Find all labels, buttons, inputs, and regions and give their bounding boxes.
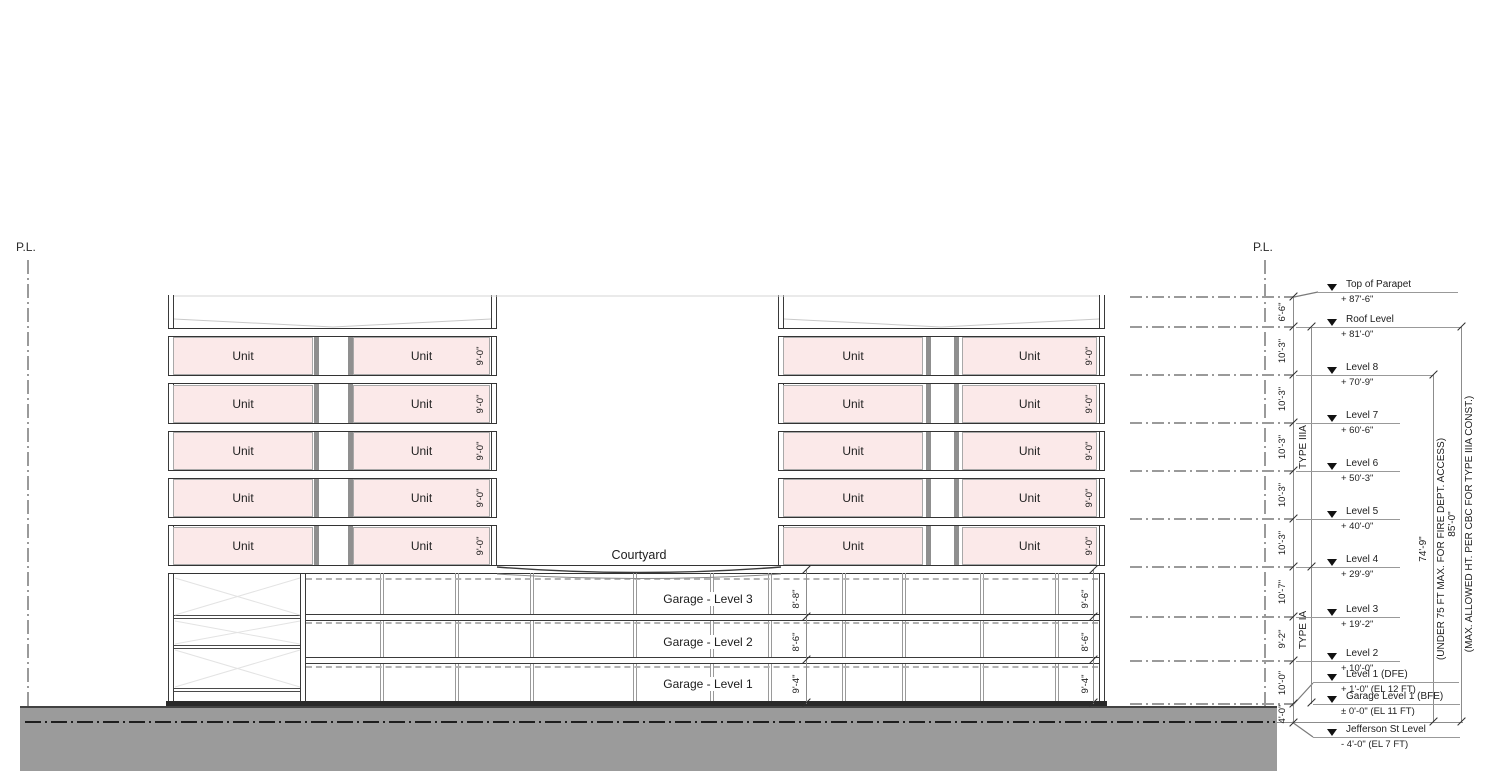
unit-label: Unit: [842, 491, 863, 505]
jefferson-street-level-line: [25, 721, 1275, 723]
unit-label: Unit: [842, 539, 863, 553]
garage-height-dimension-right: 9'-4": [1080, 673, 1092, 696]
level-name: Level 2: [1346, 649, 1378, 659]
floor-to-floor-dimension: 10'-7": [1278, 580, 1288, 604]
garage-column: [842, 573, 846, 701]
floor-slab: [778, 423, 1105, 432]
garage-floor-slab: [306, 657, 1099, 664]
unit-label: Unit: [232, 444, 253, 458]
floor-to-floor-dimension: 10'-3": [1278, 531, 1288, 555]
max-height-note: (MAX. ALLOWED HT. PER CBC FOR TYPE IIIA …: [1465, 396, 1475, 653]
level-marker-triangle-icon: [1327, 367, 1337, 374]
property-line-left: [27, 260, 29, 706]
floor-to-floor-dimension: 10'-3": [1278, 483, 1288, 507]
floor-slab: [778, 375, 1105, 384]
garage-column: [980, 573, 984, 701]
unit-room: Unit: [783, 432, 923, 470]
level-name: Level 6: [1346, 459, 1378, 469]
garage-dimension-line-right: [1093, 570, 1094, 704]
unit-label: Unit: [411, 444, 432, 458]
floor-to-floor-dimension: 6'-6": [1278, 303, 1288, 322]
type-dimension-line: [1311, 327, 1312, 704]
garage-column: [530, 573, 534, 701]
level-name: Level 7: [1346, 411, 1378, 421]
core-floor: [174, 615, 300, 619]
unit-label: Unit: [232, 397, 253, 411]
unit-room: Unit: [962, 527, 1097, 565]
garage-height-dimension-right: 8'-6": [1080, 631, 1092, 654]
level-marker-line: [1318, 292, 1458, 293]
unit-height-dimension: 9'-0": [1085, 537, 1095, 556]
roof-slope-lines: [174, 319, 1099, 327]
unit-room: Unit: [783, 527, 923, 565]
unit-room: Unit: [783, 479, 923, 517]
level-elevation: + 70'-9": [1341, 378, 1373, 388]
unit-label: Unit: [232, 539, 253, 553]
garage-level-label: Garage - Level 3: [652, 592, 764, 606]
garage-level-label: Garage - Level 1: [652, 677, 764, 691]
level-name: Jefferson St Level: [1346, 725, 1426, 735]
level-marker-line: [1296, 471, 1400, 472]
garage-column: [1055, 573, 1059, 701]
level-extension-line: [1130, 326, 1293, 328]
garage-dimension-line-mid: [806, 570, 807, 704]
ramp-brace-lines: [175, 578, 300, 687]
level-name: Roof Level: [1346, 315, 1394, 325]
core-floor: [174, 688, 300, 692]
level-marker-line: [1313, 704, 1460, 705]
level-marker-line: [1296, 327, 1461, 328]
floor-slab: [168, 517, 497, 526]
garage-column: [380, 573, 384, 701]
unit-label: Unit: [411, 491, 432, 505]
unit-label: Unit: [842, 349, 863, 363]
level-elevation: - 4'-0" (EL 7 FT): [1341, 740, 1408, 750]
unit-label: Unit: [1019, 491, 1040, 505]
level-extension-line: [1130, 518, 1293, 520]
level-marker-triangle-icon: [1327, 653, 1337, 660]
level-elevation: ± 0'-0" (EL 11 FT): [1341, 707, 1415, 717]
roof-slab: [778, 328, 1105, 337]
level-extension-line: [1130, 660, 1293, 662]
unit-height-dimension: 9'-0": [1085, 395, 1095, 414]
garage-column: [902, 573, 906, 701]
property-line-label-left: P.L.: [16, 240, 36, 254]
garage-ceiling-dashed-line: [306, 578, 1098, 580]
garage-column: [633, 573, 637, 701]
floor-to-floor-dimension: 9'-2": [1278, 630, 1288, 649]
unit-label: Unit: [411, 397, 432, 411]
unit-height-dimension: 9'-0": [476, 395, 486, 414]
unit-room: Unit: [783, 337, 923, 375]
unit-height-dimension: 9'-0": [1085, 347, 1095, 366]
level-name: Level 4: [1346, 555, 1378, 565]
level-marker-line: [1296, 519, 1400, 520]
unit-label: Unit: [232, 349, 253, 363]
roof-slab: [168, 328, 497, 337]
level-marker-line: [1296, 567, 1400, 568]
level-name: Level 3: [1346, 605, 1378, 615]
level-name: Top of Parapet: [1346, 280, 1411, 290]
level-elevation: + 81'-0": [1341, 330, 1373, 340]
unit-room: Unit: [173, 432, 313, 470]
unit-height-dimension: 9'-0": [476, 489, 486, 508]
garage-column: [455, 573, 459, 701]
unit-room: Unit: [783, 385, 923, 423]
unit-label: Unit: [411, 349, 432, 363]
unit-label: Unit: [1019, 444, 1040, 458]
unit-height-dimension: 9'-0": [476, 442, 486, 461]
garage-floor-slab: [306, 614, 1099, 621]
construction-type-label: TYPE IIIA: [1299, 425, 1309, 469]
level-marker-triangle-icon: [1327, 729, 1337, 736]
unit-label: Unit: [842, 444, 863, 458]
floor-to-floor-dimension: 10'-0": [1278, 671, 1288, 695]
level-name: Level 5: [1346, 507, 1378, 517]
floor-slab: [778, 517, 1105, 526]
floor-slab: [168, 375, 497, 384]
garage-column: [768, 573, 772, 701]
fire-access-height-value: 74'-9": [1419, 536, 1429, 561]
floor-to-floor-dimension: 10'-3": [1278, 387, 1288, 411]
level-marker-line: [1313, 682, 1459, 683]
unit-room: Unit: [173, 337, 313, 375]
unit-room: Unit: [173, 527, 313, 565]
level-marker-triangle-icon: [1327, 511, 1337, 518]
unit-room: Unit: [173, 479, 313, 517]
level-name: Garage Level 1 (BFE): [1346, 692, 1443, 702]
fire-access-height-note: (UNDER 75 FT MAX. FOR FIRE DEPT. ACCESS): [1437, 438, 1447, 660]
level-marker-triangle-icon: [1327, 559, 1337, 566]
level-extension-line: [1130, 422, 1293, 424]
unit-room: Unit: [353, 527, 490, 565]
level-elevation: + 40'-0": [1341, 522, 1373, 532]
level-marker-triangle-icon: [1327, 415, 1337, 422]
unit-height-dimension: 9'-0": [1085, 489, 1095, 508]
floor-to-floor-dimension: 10'-3": [1278, 435, 1288, 459]
unit-height-dimension: 9'-0": [476, 537, 486, 556]
building-section-drawing: Unit Unit Unit Unit 9'-0" 9'-0" Unit Uni…: [0, 0, 1500, 774]
garage-ceiling-dashed-line: [306, 622, 1098, 624]
level-extension-line: [1130, 616, 1293, 618]
level-extension-line: [1130, 470, 1293, 472]
unit-label: Unit: [1019, 349, 1040, 363]
unit-label: Unit: [842, 397, 863, 411]
garage-height-dimension-mid: 8'-8": [791, 588, 803, 611]
level-marker-line: [1296, 617, 1400, 618]
garage-height-dimension-mid: 9'-4": [791, 673, 803, 696]
level-marker-triangle-icon: [1327, 674, 1337, 681]
garage-height-dimension-mid: 8'-6": [791, 631, 803, 654]
unit-room: Unit: [173, 385, 313, 423]
unit-label: Unit: [1019, 539, 1040, 553]
unit-label: Unit: [411, 539, 432, 553]
level-marker-line: [1296, 661, 1400, 662]
max-height-value: 85'-0": [1448, 511, 1458, 536]
fire-access-dimension-line: [1433, 375, 1434, 722]
unit-room: Unit: [353, 385, 490, 423]
level-elevation: + 50'-3": [1341, 474, 1373, 484]
garage-core-wall: [300, 573, 306, 702]
floor-to-floor-dimension: 10'-3": [1278, 339, 1288, 363]
unit-room: Unit: [962, 385, 1097, 423]
level-extension-line: [1130, 374, 1293, 376]
level-marker-line: [1296, 423, 1400, 424]
corridor-wall: [314, 336, 319, 565]
corridor-wall: [954, 336, 959, 565]
level-marker-triangle-icon: [1327, 319, 1337, 326]
garage-level-label: Garage - Level 2: [652, 635, 764, 649]
unit-height-dimension: 9'-0": [476, 347, 486, 366]
floor-slab: [168, 470, 497, 479]
floor-slab: [778, 470, 1105, 479]
garage-height-dimension-right: 9'-6": [1080, 588, 1092, 611]
property-line-label-right: P.L.: [1253, 240, 1273, 254]
unit-room: Unit: [962, 432, 1097, 470]
ground-hatch: [20, 706, 1277, 771]
corridor-wall: [926, 336, 931, 565]
courtyard-label: Courtyard: [579, 548, 699, 562]
unit-height-dimension: 9'-0": [1085, 442, 1095, 461]
level-extension-line: [1130, 296, 1293, 298]
building-base-line: [166, 701, 1107, 706]
level-marker-triangle-icon: [1327, 463, 1337, 470]
level-marker-triangle-icon: [1327, 696, 1337, 703]
core-floor: [174, 645, 300, 649]
level-extension-line: [1130, 566, 1293, 568]
unit-label: Unit: [1019, 397, 1040, 411]
floor-to-floor-dimension: 4'-0": [1278, 705, 1288, 724]
unit-room: Unit: [353, 337, 490, 375]
level-elevation: + 87'-6": [1341, 295, 1373, 305]
level-name: Level 1 (DFE): [1346, 670, 1408, 680]
unit-room: Unit: [353, 479, 490, 517]
unit-room: Unit: [962, 337, 1097, 375]
unit-room: Unit: [353, 432, 490, 470]
garage-ceiling-dashed-line: [306, 666, 1098, 668]
level-elevation: + 29'-9": [1341, 570, 1373, 580]
max-height-dimension-line: [1461, 327, 1462, 722]
level-marker-triangle-icon: [1327, 284, 1337, 291]
level-elevation: + 60'-6": [1341, 426, 1373, 436]
level-elevation: + 19'-2": [1341, 620, 1373, 630]
level-marker-line: [1313, 737, 1460, 738]
level-name: Level 8: [1346, 363, 1378, 373]
level-marker-triangle-icon: [1327, 609, 1337, 616]
right-tower-outer-wall: [1099, 295, 1105, 702]
construction-type-label: TYPE IA: [1299, 611, 1309, 649]
level-marker-line: [1296, 375, 1433, 376]
unit-room: Unit: [962, 479, 1097, 517]
unit-label: Unit: [232, 491, 253, 505]
floor-slab: [168, 423, 497, 432]
level-extension-line: [1130, 703, 1293, 705]
